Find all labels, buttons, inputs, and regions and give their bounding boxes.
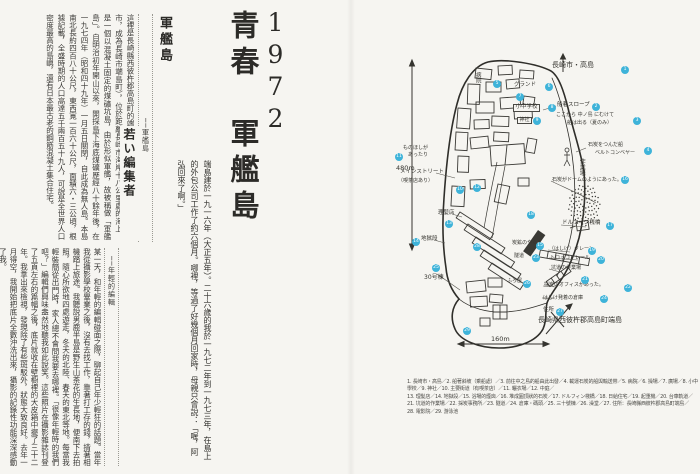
map-label: グランド [514,83,536,89]
legend-line: 1. 長崎市・高島／2. 船著斜坡（乘船處）／3. 前往中之島的船由此出發／4.… [407,379,698,393]
legend-line: 28. 電影院／29. 游泳池 [407,409,698,416]
horizontal-scale-label: 160m [491,335,510,343]
map-label: 隧道 [514,254,524,259]
map-marker-dot: 12 [473,184,481,192]
vertical-scale-label: 480m [396,164,415,172]
map-marker-dot: 20 [597,256,605,264]
map-marker-dot: 16 [621,176,629,184]
map-marker-dot: 28 [473,243,481,251]
map-marker-dot: 29 [463,327,471,335]
map-marker-dot: 14 [412,238,420,246]
map-label: 小中学校 [513,104,540,112]
map-label: （喫茶店あり） [398,179,433,184]
map-marker-dot: 24 [600,295,608,303]
map-legend-caption: 1. 長崎市・高島／2. 船著斜坡（乘船處）／3. 前往中之島的船由此出發／4.… [407,379,698,417]
map-label: 石炭をつんだ船 [588,143,623,148]
map-marker-dot: 4 [644,147,652,155]
map-label: ベルトコンベヤー [595,151,635,156]
quote-attribution-young-editor: ──年輕的編輯 [107,248,117,306]
map-label: 病院 [474,72,480,83]
map-marker-dot: 25 [432,264,440,272]
map-label: 採炭のオフィスがあった。 [544,283,604,288]
map-label: はしけ発着の倉庫 [543,296,583,301]
map-marker-dot: 1 [621,66,629,74]
map-label: 作業場 [578,158,584,176]
map-marker-dot: 10 [456,186,464,194]
map-label: あったり [408,153,428,158]
map-marker-dot: 8 [548,104,556,112]
worker-figure-sketch [564,148,570,166]
quote-attribution-rule: ──軍艦島 [138,14,153,242]
map-marker-dot: 15 [536,242,544,250]
map-label: 住所 [543,308,554,314]
map-label: ものほしが [403,146,428,151]
section-header-young-editor: 若い編集者 [120,126,139,240]
map-label: 船着スロープ [557,103,590,109]
legend-line: 21. 坑道的作業場／22. 採炭事務所／23. 隧道／24. 倉庫・碼頭／25… [407,401,698,408]
map-marker-dot: 19 [588,247,596,255]
map-marker-dot: 9 [533,117,541,125]
quote-attribution-rule-2: ──年輕的編輯 [104,248,119,466]
map-label: ここから 中ノ島 にむけて [556,113,614,118]
map-marker-dot: 18 [527,211,535,219]
quote-attribution-gunkanjima: ──軍艦島 [141,14,151,152]
book-spread: 1972 青春 軍艦島 軍艦島 ──軍艦島 這裡是長崎縣西彼杵郡高島町的端島（二… [0,0,700,474]
map-marker-dot: 17 [606,222,614,230]
map-label: 30号棟 [424,275,444,281]
legend-line: 13. 理髮店／14. 地獄段／15. 浴場的煙囪／16. 堆成圓頂狀的石炭／1… [407,394,698,401]
map-label: 長崎市・高島 [552,62,594,69]
map-label: 神社 [517,117,532,124]
map-marker-dot: 27 [556,308,564,316]
map-marker-dot: 3 [633,117,641,125]
map-marker-dot: 5 [493,80,501,88]
map-marker-dot: 21 [581,276,589,284]
map-label: 坑道の作業場 [551,266,581,271]
map-label: 理髪店 [438,211,455,217]
map-label: 地獄段 [421,237,438,243]
map-marker-dot: 7 [516,93,524,101]
map-marker-dot: 2 [592,103,600,111]
map-marker-dot: 6 [545,83,553,91]
map-marker-dot: 26 [523,280,531,288]
map-marker-dot: 11 [395,153,403,161]
map-label: トロッコ・レール [550,256,590,261]
map-marker-dot: 23 [532,254,540,262]
map-label: 石炭がドームのようにあった。 [552,178,622,183]
map-label: 長崎県西彼杵郡高島町端島 [538,317,622,324]
map-marker-dot: 22 [624,284,632,292]
map-label: 船は出る（夏のみ） [567,121,612,126]
map-marker-dot: 13 [445,220,453,228]
map-label: ドルフィン桟橋 [562,221,600,227]
map-label: ふろ屋 [507,279,522,284]
